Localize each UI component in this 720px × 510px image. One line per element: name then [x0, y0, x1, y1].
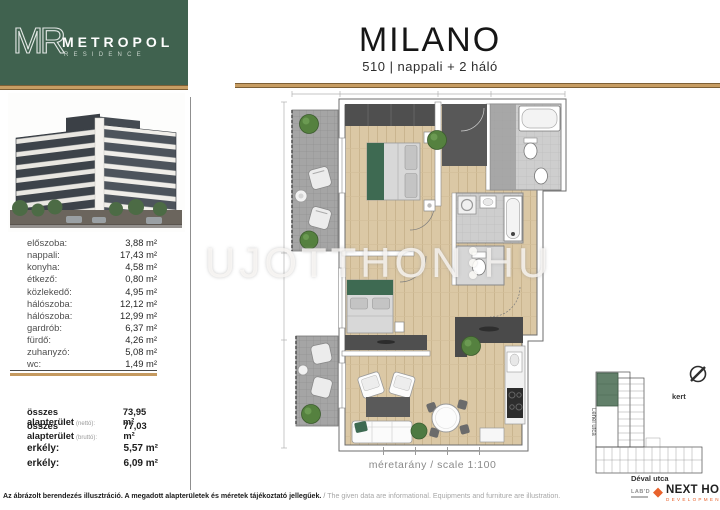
- room-label: gardrób:: [27, 322, 62, 334]
- room-row: előszoba:3,88 m²: [27, 237, 157, 249]
- balcony-area: 6,09 m²: [124, 458, 158, 473]
- room-row: gardrób:6,37 m²: [27, 322, 157, 334]
- fridge: [480, 428, 504, 442]
- room-label: konyha:: [27, 261, 60, 273]
- scale-bar: [383, 450, 480, 457]
- list-rule-dark: [10, 370, 157, 371]
- brand-subname: RESIDENCE: [64, 52, 146, 58]
- total-row: összes alapterület(bruttó):77,03 m²: [27, 421, 158, 435]
- room-area: 12,99 m²: [120, 310, 157, 322]
- room-area: 17,43 m²: [120, 249, 157, 261]
- dining-table: [432, 404, 460, 432]
- cooktop: [507, 388, 523, 418]
- total-note: (bruttó):: [76, 435, 97, 441]
- balcony-label: erkély:: [27, 443, 59, 458]
- coffee-table: [366, 397, 410, 417]
- brand-monogram-icon: MR: [13, 20, 63, 62]
- brand-name: METROPOL: [62, 34, 173, 50]
- room-area: 3,88 m²: [125, 237, 157, 249]
- page-subtitle: 510 | nappali + 2 háló: [190, 59, 670, 74]
- building-render-image: [8, 93, 185, 232]
- room-row: konyha:4,58 m²: [27, 261, 157, 273]
- balcony-label: erkély:: [27, 458, 59, 473]
- room-row: étkező:0,80 m²: [27, 273, 157, 285]
- room-label: hálószoba:: [27, 298, 72, 310]
- room-row: közlekedő:4,95 m²: [27, 286, 157, 298]
- balcony-row: erkély:6,09 m²: [27, 458, 158, 473]
- scale-text: méretarány / scale 1:100: [350, 459, 515, 471]
- page-title: MILANO: [190, 22, 670, 58]
- room-label: zuhanyzó:: [27, 346, 70, 358]
- room-area-list: előszoba:3,88 m² nappali:17,43 m² konyha…: [27, 237, 157, 371]
- list-rule-gold: [10, 373, 157, 376]
- title-block: MILANO 510 | nappali + 2 háló: [190, 22, 670, 74]
- north-arrow-icon: [691, 367, 706, 382]
- watermark-dots-icon: [469, 247, 477, 279]
- bathroom-shower: [456, 193, 523, 243]
- toilet: [524, 143, 537, 159]
- garden-label: kert: [672, 392, 686, 401]
- room-label: nappali:: [27, 249, 60, 261]
- room-area: 4,58 m²: [125, 261, 157, 273]
- site-plan: kert Lehel utca Déval utca: [584, 360, 718, 486]
- total-row: összes alapterület(nettó):73,95 m²: [27, 407, 158, 421]
- watermark-left: UJOTTHON: [205, 239, 466, 287]
- room-label: előszoba:: [27, 237, 67, 249]
- room-label: wc:: [27, 358, 41, 370]
- brand-logo-block: MR METROPOL RESIDENCE: [0, 0, 188, 85]
- room-label: fürdő:: [27, 334, 51, 346]
- sink: [535, 168, 548, 184]
- room-label: közlekedő:: [27, 286, 72, 298]
- balcony-list: erkély:5,57 m² erkély:6,09 m²: [27, 443, 158, 473]
- room-row: fürdő:4,26 m²: [27, 334, 157, 346]
- brand-gold-rule: [0, 85, 188, 90]
- disclaimer-en: The given data are informational. Equipm…: [327, 492, 560, 500]
- room-row: zuhanyzó:5,08 m²: [27, 346, 157, 358]
- room-row: hálószoba:12,99 m²: [27, 310, 157, 322]
- washing-machine: [458, 196, 476, 214]
- watermark: UJOTTHON HU: [205, 239, 552, 287]
- disclaimer: Az ábrázolt berendezés illusztráció. A m…: [3, 492, 717, 500]
- balcony-row: erkély:5,57 m²: [27, 443, 158, 458]
- room-area: 0,80 m²: [125, 273, 157, 285]
- room-label: étkező:: [27, 273, 57, 285]
- watermark-right: HU: [484, 239, 553, 287]
- room-area: 6,37 m²: [125, 322, 157, 334]
- room-area: 4,26 m²: [125, 334, 157, 346]
- disclaimer-hu: Az ábrázolt berendezés illusztráció. A m…: [3, 492, 321, 500]
- room-area: 5,08 m²: [125, 346, 157, 358]
- room-area: 1,49 m²: [125, 358, 157, 370]
- street-label-bottom: Déval utca: [631, 474, 669, 483]
- sidebar-divider: [190, 97, 191, 490]
- total-area: 77,03 m²: [123, 421, 158, 441]
- brochure-page: MR METROPOL RESIDENCE MILANO 510 | nappa…: [0, 0, 720, 510]
- street-label-left: Lehel utca: [590, 408, 596, 436]
- highlighted-unit: [597, 373, 618, 406]
- room-area: 4,95 m²: [125, 286, 157, 298]
- totals-list: összes alapterület(nettó):73,95 m² össze…: [27, 407, 158, 435]
- total-label: összes alapterület: [27, 421, 74, 441]
- bathroom-main: [486, 104, 561, 190]
- room-row: hálószoba:12,12 m²: [27, 298, 157, 310]
- room-area: 12,12 m²: [120, 298, 157, 310]
- room-label: hálószoba:: [27, 310, 72, 322]
- balcony-area: 5,57 m²: [124, 443, 158, 458]
- room-row: wc:1,49 m²: [27, 358, 157, 370]
- room-row: nappali:17,43 m²: [27, 249, 157, 261]
- wardrobe: [345, 104, 438, 126]
